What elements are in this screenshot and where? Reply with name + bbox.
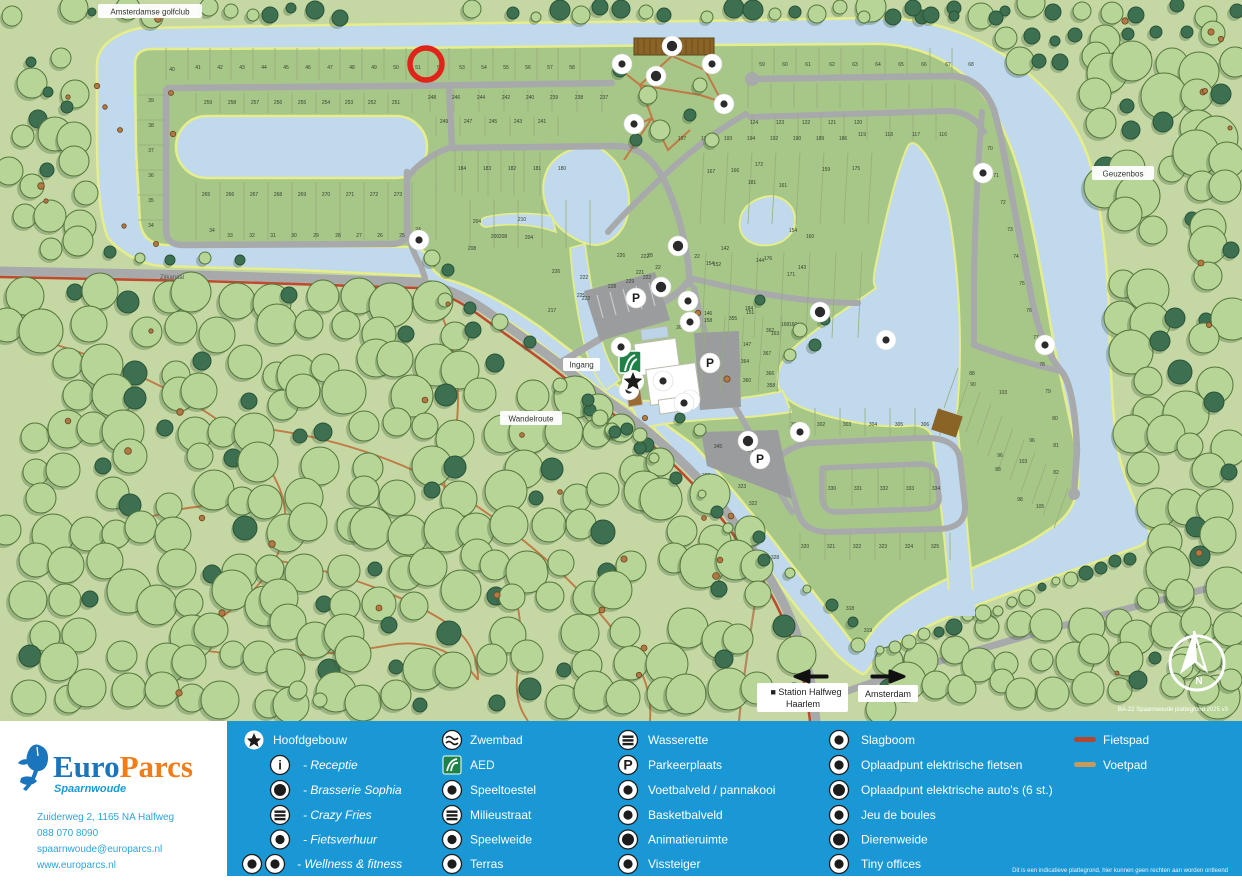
svg-text:166: 166 — [731, 168, 740, 174]
svg-text:186: 186 — [839, 136, 848, 142]
svg-text:255: 255 — [298, 100, 307, 106]
svg-text:222: 222 — [580, 275, 589, 281]
svg-text:228: 228 — [608, 284, 617, 290]
svg-text:71: 71 — [993, 173, 999, 179]
svg-text:N: N — [1195, 676, 1202, 687]
svg-text:Dierenweide: Dierenweide — [861, 833, 928, 847]
svg-text:54: 54 — [481, 65, 487, 71]
svg-text:305: 305 — [895, 422, 904, 428]
svg-text:181: 181 — [748, 180, 757, 186]
svg-text:158: 158 — [704, 318, 713, 324]
svg-text:271: 271 — [346, 192, 355, 198]
svg-text:229: 229 — [626, 279, 635, 285]
svg-text:226: 226 — [552, 269, 561, 275]
svg-text:76: 76 — [1026, 308, 1032, 314]
svg-text:- Wellness & fitness: - Wellness & fitness — [297, 857, 402, 871]
svg-text:46: 46 — [305, 65, 311, 71]
svg-text:180: 180 — [558, 166, 567, 172]
svg-text:Dit is een indicatieve platteg: Dit is een indicatieve plattegrond, hier… — [1012, 868, 1228, 874]
svg-text:88: 88 — [995, 467, 1001, 473]
svg-text:78: 78 — [1039, 362, 1045, 368]
svg-text:088 070 8090: 088 070 8090 — [37, 828, 99, 839]
svg-text:367: 367 — [763, 351, 772, 357]
svg-text:269: 269 — [298, 192, 307, 198]
svg-text:Haarlem: Haarlem — [786, 699, 820, 709]
svg-text:EuroParcs: EuroParcs — [53, 749, 193, 784]
svg-text:152: 152 — [713, 262, 722, 268]
svg-text:73: 73 — [1007, 227, 1013, 233]
svg-text:75: 75 — [1019, 281, 1025, 287]
svg-text:■ Station Halfweg: ■ Station Halfweg — [771, 687, 842, 697]
svg-text:80: 80 — [1052, 416, 1058, 422]
svg-text:226: 226 — [617, 253, 626, 259]
svg-text:- Fietsverhuur: - Fietsverhuur — [303, 833, 378, 847]
svg-text:43: 43 — [239, 65, 245, 71]
svg-text:240: 240 — [526, 95, 535, 101]
svg-text:Zijkanaal: Zijkanaal — [160, 275, 184, 281]
svg-text:204: 204 — [525, 235, 534, 241]
svg-text:322: 322 — [853, 544, 862, 550]
svg-text:142: 142 — [721, 246, 730, 252]
svg-text:116: 116 — [939, 132, 947, 138]
svg-text:257: 257 — [251, 100, 260, 106]
svg-text:Speelweide: Speelweide — [470, 833, 532, 847]
svg-text:81: 81 — [1053, 443, 1059, 449]
svg-text:246: 246 — [452, 95, 461, 101]
svg-text:90: 90 — [970, 382, 976, 388]
svg-text:117: 117 — [912, 132, 920, 138]
svg-text:22: 22 — [694, 254, 700, 260]
svg-text:366: 366 — [766, 371, 775, 377]
svg-text:306: 306 — [921, 422, 930, 428]
svg-text:259: 259 — [204, 100, 213, 106]
svg-text:67: 67 — [945, 62, 951, 68]
svg-text:330: 330 — [828, 486, 837, 492]
svg-text:Voetbalveld / pannakooi: Voetbalveld / pannakooi — [648, 783, 775, 797]
svg-text:208: 208 — [468, 246, 477, 252]
svg-text:256: 256 — [274, 100, 283, 106]
svg-text:- Receptie: - Receptie — [303, 758, 358, 772]
svg-text:251: 251 — [392, 100, 401, 106]
svg-text:72: 72 — [1000, 200, 1006, 206]
svg-text:245: 245 — [489, 119, 498, 125]
svg-text:Geuzenbos: Geuzenbos — [1103, 170, 1144, 179]
svg-text:332: 332 — [880, 486, 889, 492]
svg-text:331: 331 — [854, 486, 863, 492]
svg-text:Basketbalveld: Basketbalveld — [648, 808, 723, 822]
svg-text:- Brasserie Sophia: - Brasserie Sophia — [303, 783, 402, 797]
svg-text:27: 27 — [356, 233, 362, 239]
svg-text:243: 243 — [514, 119, 523, 125]
svg-text:50: 50 — [393, 65, 399, 71]
svg-text:55: 55 — [503, 65, 509, 71]
svg-text:175: 175 — [852, 166, 861, 172]
svg-text:237: 237 — [600, 95, 609, 101]
svg-text:60: 60 — [782, 62, 788, 68]
svg-text:239: 239 — [550, 95, 559, 101]
svg-text:Milieustraat: Milieustraat — [470, 808, 532, 822]
svg-text:41: 41 — [195, 65, 201, 71]
svg-text:119: 119 — [858, 132, 866, 138]
svg-text:Spaarnwoude: Spaarnwoude — [54, 783, 126, 795]
svg-text:35: 35 — [148, 198, 154, 204]
svg-text:182: 182 — [508, 166, 517, 172]
svg-text:360: 360 — [743, 378, 752, 384]
svg-text:47: 47 — [327, 65, 333, 71]
svg-text:254: 254 — [322, 100, 331, 106]
svg-text:302: 302 — [817, 422, 826, 428]
svg-text:273: 273 — [394, 192, 403, 198]
svg-text:171: 171 — [787, 272, 796, 278]
svg-text:184: 184 — [745, 306, 754, 312]
svg-text:120: 120 — [854, 120, 863, 126]
svg-text:spaarnwoude@europarcs.nl: spaarnwoude@europarcs.nl — [37, 844, 162, 855]
svg-text:Speeltoestel: Speeltoestel — [470, 783, 536, 797]
svg-text:P: P — [632, 291, 640, 305]
svg-text:160: 160 — [806, 234, 815, 240]
svg-text:146: 146 — [704, 311, 713, 317]
svg-text:62: 62 — [829, 62, 835, 68]
svg-text:BA-22 Spaarnwoude plattegrond: BA-22 Spaarnwoude plattegrond 2025 v3 — [1118, 707, 1229, 713]
svg-text:319: 319 — [864, 628, 873, 634]
svg-text:31: 31 — [270, 233, 276, 239]
svg-text:345: 345 — [714, 444, 723, 450]
svg-text:www.europarcs.nl: www.europarcs.nl — [36, 860, 116, 871]
svg-text:Amsterdam: Amsterdam — [865, 689, 911, 699]
svg-text:P: P — [706, 356, 714, 370]
svg-text:i: i — [278, 758, 282, 773]
svg-text:208: 208 — [499, 234, 508, 240]
svg-text:Fietspad: Fietspad — [1103, 733, 1149, 747]
svg-text:59: 59 — [759, 62, 765, 68]
svg-text:190: 190 — [793, 136, 802, 142]
svg-text:159: 159 — [822, 167, 831, 173]
svg-text:AED: AED — [470, 758, 495, 772]
svg-text:30: 30 — [291, 233, 297, 239]
svg-text:161: 161 — [779, 183, 788, 189]
svg-text:322: 322 — [749, 501, 758, 507]
svg-text:210: 210 — [518, 217, 527, 223]
svg-text:172: 172 — [755, 162, 764, 168]
svg-text:39: 39 — [148, 98, 154, 104]
svg-text:57: 57 — [547, 65, 553, 71]
svg-text:144: 144 — [756, 258, 765, 264]
svg-text:364: 364 — [741, 359, 750, 365]
svg-text:222: 222 — [582, 296, 591, 302]
svg-text:Parkeerplaats: Parkeerplaats — [648, 758, 722, 772]
svg-text:Amsterdamse golfclub: Amsterdamse golfclub — [110, 8, 190, 17]
svg-text:74: 74 — [1013, 254, 1019, 260]
svg-text:68: 68 — [968, 62, 974, 68]
svg-text:48: 48 — [349, 65, 355, 71]
svg-text:204: 204 — [473, 219, 482, 225]
svg-text:Hoofdgebouw: Hoofdgebouw — [273, 733, 347, 747]
svg-text:38: 38 — [148, 123, 154, 129]
svg-text:34: 34 — [148, 223, 154, 229]
svg-text:- Crazy Fries: - Crazy Fries — [303, 808, 372, 822]
svg-text:266: 266 — [226, 192, 235, 198]
svg-text:268: 268 — [274, 192, 283, 198]
svg-text:Vissteiger: Vissteiger — [648, 857, 700, 871]
svg-text:267: 267 — [250, 192, 259, 198]
svg-text:Wasserette: Wasserette — [648, 733, 709, 747]
svg-text:22: 22 — [655, 265, 661, 271]
svg-text:238: 238 — [575, 95, 584, 101]
svg-text:65: 65 — [898, 62, 904, 68]
svg-text:58: 58 — [569, 65, 575, 71]
svg-text:Voetpad: Voetpad — [1103, 758, 1147, 772]
svg-text:64: 64 — [875, 62, 881, 68]
svg-text:197: 197 — [678, 136, 687, 142]
svg-text:303: 303 — [843, 422, 852, 428]
svg-text:217: 217 — [548, 308, 557, 314]
svg-text:96: 96 — [1029, 438, 1035, 444]
svg-text:147: 147 — [743, 342, 752, 348]
svg-text:44: 44 — [261, 65, 267, 71]
svg-text:355: 355 — [729, 316, 738, 322]
svg-text:Ingang: Ingang — [569, 361, 593, 370]
svg-text:324: 324 — [905, 544, 914, 550]
svg-text:103: 103 — [1019, 459, 1028, 465]
svg-text:32: 32 — [249, 233, 255, 239]
svg-text:321: 321 — [827, 544, 836, 550]
svg-text:Terras: Terras — [470, 857, 503, 871]
svg-text:103: 103 — [999, 390, 1008, 396]
svg-text:183: 183 — [483, 166, 492, 172]
svg-text:36: 36 — [148, 173, 154, 179]
svg-text:334: 334 — [932, 486, 941, 492]
svg-text:Jeu de boules: Jeu de boules — [861, 808, 936, 822]
svg-text:143: 143 — [798, 265, 807, 271]
svg-text:45: 45 — [283, 65, 289, 71]
svg-text:200: 200 — [491, 234, 500, 240]
svg-text:70: 70 — [987, 146, 993, 152]
svg-text:66: 66 — [921, 62, 927, 68]
svg-text:154: 154 — [789, 228, 798, 234]
svg-text:122: 122 — [802, 120, 811, 126]
svg-text:28: 28 — [647, 253, 653, 259]
svg-text:325: 325 — [931, 544, 940, 550]
svg-text:241: 241 — [538, 119, 547, 125]
svg-text:304: 304 — [869, 422, 878, 428]
svg-text:265: 265 — [202, 192, 211, 198]
svg-text:192: 192 — [770, 136, 779, 142]
svg-text:53: 53 — [459, 65, 465, 71]
svg-text:Slagboom: Slagboom — [861, 733, 915, 747]
svg-text:P: P — [756, 452, 764, 466]
svg-text:61: 61 — [805, 62, 811, 68]
svg-text:56: 56 — [525, 65, 531, 71]
svg-text:118: 118 — [885, 132, 893, 138]
svg-text:40: 40 — [169, 67, 175, 73]
svg-text:63: 63 — [852, 62, 858, 68]
svg-text:244: 244 — [477, 95, 486, 101]
svg-text:248: 248 — [428, 95, 437, 101]
svg-text:323: 323 — [738, 484, 747, 490]
svg-text:Oplaadpunt elektrische fietsen: Oplaadpunt elektrische fietsen — [861, 758, 1022, 772]
svg-text:Animatieruimte: Animatieruimte — [648, 833, 728, 847]
svg-text:222: 222 — [643, 275, 652, 281]
svg-text:193: 193 — [724, 136, 733, 142]
svg-text:272: 272 — [370, 192, 379, 198]
svg-text:258: 258 — [228, 100, 237, 106]
svg-text:26: 26 — [377, 233, 383, 239]
svg-text:270: 270 — [322, 192, 331, 198]
svg-text:33: 33 — [227, 233, 233, 239]
svg-text:181: 181 — [533, 166, 542, 172]
svg-text:29: 29 — [313, 233, 319, 239]
svg-text:121: 121 — [828, 120, 837, 126]
svg-text:49: 49 — [371, 65, 377, 71]
svg-text:124: 124 — [750, 120, 759, 126]
svg-text:105: 105 — [1036, 504, 1045, 510]
svg-text:123: 123 — [776, 120, 785, 126]
svg-text:252: 252 — [368, 100, 377, 106]
svg-text:167: 167 — [707, 169, 716, 175]
svg-text:98: 98 — [1017, 497, 1023, 503]
svg-text:249: 249 — [440, 119, 449, 125]
svg-text:Tiny offices: Tiny offices — [861, 857, 921, 871]
svg-text:176: 176 — [764, 256, 773, 262]
svg-text:318: 318 — [846, 606, 855, 612]
svg-text:184: 184 — [458, 166, 467, 172]
svg-text:323: 323 — [879, 544, 888, 550]
svg-text:42: 42 — [217, 65, 223, 71]
svg-text:34: 34 — [209, 228, 215, 234]
svg-text:362: 362 — [766, 328, 775, 334]
svg-text:247: 247 — [464, 119, 473, 125]
svg-text:P: P — [623, 757, 632, 773]
svg-text:189: 189 — [816, 136, 825, 142]
svg-text:28: 28 — [335, 233, 341, 239]
svg-text:82: 82 — [1053, 470, 1059, 476]
svg-text:96: 96 — [997, 453, 1003, 459]
svg-text:Oplaadpunt elektrische auto's: Oplaadpunt elektrische auto's (6 st.) — [861, 783, 1053, 797]
svg-text:358: 358 — [767, 383, 776, 389]
svg-text:Wandelroute: Wandelroute — [508, 415, 554, 424]
svg-text:88: 88 — [969, 371, 975, 377]
svg-text:Zwembad: Zwembad — [470, 733, 523, 747]
svg-text:320: 320 — [801, 544, 810, 550]
svg-text:Zuiderweg 2, 1165 NA Halfweg: Zuiderweg 2, 1165 NA Halfweg — [37, 812, 174, 823]
svg-text:253: 253 — [345, 100, 354, 106]
svg-text:194: 194 — [747, 136, 756, 142]
svg-text:37: 37 — [148, 148, 154, 154]
svg-text:79: 79 — [1045, 389, 1051, 395]
svg-text:333: 333 — [906, 486, 915, 492]
svg-text:51: 51 — [415, 65, 421, 71]
svg-text:25: 25 — [399, 233, 405, 239]
svg-text:242: 242 — [502, 95, 511, 101]
